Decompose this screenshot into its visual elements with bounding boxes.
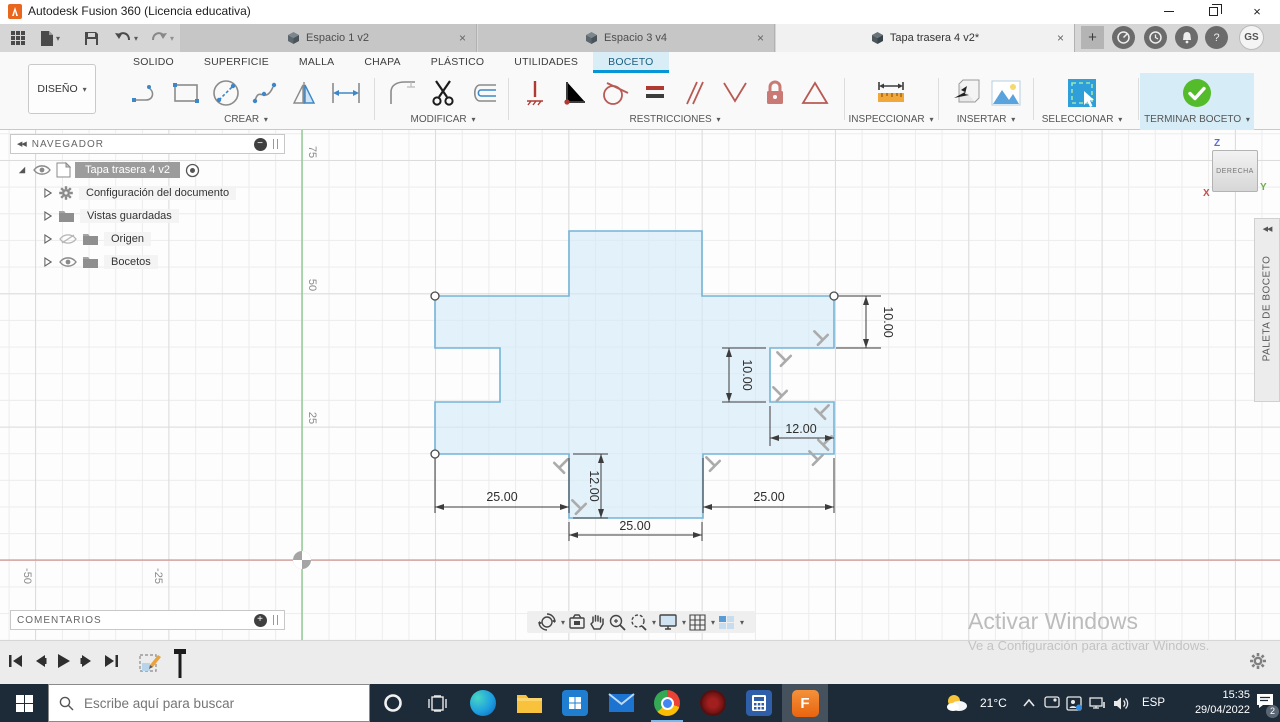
taskbar-radeon[interactable]	[690, 684, 736, 722]
tree-root-row[interactable]: Tapa trasera 4 v2	[18, 160, 200, 180]
tree-item-label[interactable]: Origen	[104, 232, 151, 246]
group-separator	[508, 78, 509, 120]
y-axis-tick: 75	[306, 146, 318, 158]
go-to-end-button[interactable]	[103, 653, 119, 669]
task-view-button[interactable]	[414, 684, 460, 722]
tray-volume[interactable]	[1108, 684, 1136, 722]
sketch-dimension-button[interactable]	[326, 74, 366, 112]
folder-icon	[516, 692, 543, 714]
dimension-value[interactable]: 10.00	[740, 359, 754, 390]
fix-constraint-icon	[524, 79, 546, 107]
tree-item-label[interactable]: Configuración del documento	[79, 186, 236, 200]
offset-icon	[468, 81, 498, 105]
group-label-terminar: TERMINAR BOCETO ▾	[1140, 114, 1254, 125]
network-icon	[1089, 696, 1106, 710]
dimension-value[interactable]: 10.00	[881, 306, 895, 337]
rectangle-icon	[172, 81, 200, 105]
doc-tab-label: Espacio 1 v2	[306, 32, 369, 44]
taskbar-store[interactable]	[552, 684, 598, 722]
tab-boceto[interactable]: BOCETO	[593, 52, 668, 73]
fusion-app-icon	[8, 4, 22, 19]
scissors-icon	[430, 79, 456, 107]
workspace-selector[interactable]: DISEÑO ▾	[28, 64, 96, 114]
navigator-title: NAVEGADOR	[32, 139, 104, 150]
group-label-seleccionar[interactable]: SELECCIONAR ▾	[1031, 114, 1133, 125]
grid-settings-button[interactable]	[689, 614, 706, 631]
mirror-icon	[292, 79, 320, 107]
collapse-panel-icon[interactable]: ◀◀	[17, 140, 26, 148]
viewcube[interactable]: DERECHA	[1212, 150, 1258, 192]
group-separator	[844, 78, 845, 120]
step-forward-button[interactable]	[80, 653, 94, 669]
expand-panel-icon[interactable]: ◀◀	[1263, 225, 1272, 233]
comments-label: COMENTARIOS	[17, 615, 102, 626]
chevron-down-icon: ▾	[1011, 115, 1015, 124]
group-separator	[1138, 78, 1139, 120]
chevron-up-icon	[1023, 699, 1035, 707]
gear-icon	[1248, 651, 1268, 671]
viewports-button[interactable]	[718, 615, 735, 630]
folder-icon	[58, 209, 75, 223]
notifications-button[interactable]	[1175, 26, 1198, 49]
file-icon	[40, 30, 54, 47]
measure-tool-button[interactable]	[871, 74, 911, 112]
perpendicular-constraint-button[interactable]	[715, 74, 755, 112]
radeon-icon	[700, 690, 726, 716]
redo-icon	[150, 31, 168, 45]
horizontal-vertical-constraint-button[interactable]	[555, 74, 595, 112]
search-input[interactable]	[84, 696, 334, 711]
circle-icon	[211, 78, 241, 108]
play-button[interactable]	[56, 653, 71, 669]
doc-tab-label: Espacio 3 v4	[604, 32, 667, 44]
group-label-crear[interactable]: CREAR ▾	[122, 114, 370, 125]
sketch-feature-icon	[138, 651, 164, 677]
offset-tool-button[interactable]	[463, 74, 503, 112]
chevron-down-icon: ▾	[1118, 115, 1122, 124]
viewcube-x-axis-label: X	[1203, 188, 1210, 199]
timeline-sketch-feature[interactable]	[138, 651, 164, 682]
restore-icon	[1209, 7, 1218, 16]
chevron-down-icon: ▾	[56, 34, 60, 43]
group-label-insertar[interactable]: INSERTAR ▾	[941, 114, 1031, 125]
panel-grip[interactable]	[273, 139, 278, 149]
root-document-label[interactable]: Tapa trasera 4 v2	[75, 162, 180, 178]
question-icon: ?	[1213, 32, 1219, 44]
edge-icon	[470, 690, 496, 716]
triangle-icon	[801, 80, 829, 106]
visibility-eye-icon[interactable]	[32, 164, 52, 176]
tab-utilidades[interactable]: UTILIDADES	[499, 52, 593, 73]
document-cube-icon	[871, 32, 884, 44]
viewcube-y-axis-label: Y	[1260, 182, 1267, 193]
ribbon-tab-strip: SOLIDO SUPERFICIE MALLA CHAPA PLÁSTICO U…	[118, 52, 669, 73]
chevron-down-icon: ▾	[717, 115, 721, 124]
sketch-palette-tab[interactable]: ◀◀ PALETA DE BOCETO	[1254, 218, 1280, 402]
chevron-down-icon: ▾	[929, 115, 933, 124]
dimension-icon	[330, 81, 362, 105]
tree-item-label[interactable]: Vistas guardadas	[80, 209, 179, 223]
group-separator	[374, 78, 375, 120]
document-cube-icon	[287, 32, 300, 44]
taskbar-fusion360[interactable]: F	[782, 684, 828, 722]
fix-constraint-button[interactable]	[515, 74, 555, 112]
tab-close-icon[interactable]: ×	[459, 31, 466, 45]
person-icon	[1066, 696, 1082, 711]
gear-icon	[58, 185, 74, 201]
comments-panel-header[interactable]: COMENTARIOS +	[10, 610, 285, 630]
x-axis-tick: -50	[21, 568, 33, 584]
x-axis-tick: -25	[152, 568, 164, 584]
horizontal-vertical-icon	[563, 80, 587, 106]
panel-grip[interactable]	[273, 615, 278, 625]
tree-item-vistas[interactable]: Vistas guardadas	[44, 206, 179, 226]
taskbar-edge[interactable]	[460, 684, 506, 722]
cortana-icon	[383, 693, 403, 713]
document-icon	[56, 162, 71, 178]
group-label-modificar[interactable]: MODIFICAR ▾	[380, 114, 506, 125]
undo-icon	[114, 31, 132, 45]
tray-language[interactable]: ESP	[1142, 684, 1165, 722]
rectangle-tool-button[interactable]	[166, 74, 206, 112]
select-tool-button[interactable]	[1062, 74, 1102, 112]
orbit-button[interactable]	[538, 613, 556, 631]
taskbar-chrome[interactable]	[644, 684, 690, 722]
folder-icon	[82, 232, 99, 246]
zoom-window-button[interactable]	[629, 613, 647, 631]
taskbar-explorer[interactable]	[506, 684, 552, 722]
group-label-inspeccionar[interactable]: INSPECCIONAR ▾	[848, 114, 934, 125]
sketch-palette-label: PALETA DE BOCETO	[1262, 256, 1273, 362]
tray-account[interactable]	[1062, 684, 1086, 722]
viewcube-z-axis-label: Z	[1214, 138, 1220, 149]
tangent-constraint-button[interactable]	[595, 74, 635, 112]
activate-target-icon[interactable]	[185, 163, 200, 178]
activate-windows-watermark-line2: Ve a Configuración para activar Windows.	[968, 638, 1209, 653]
chevron-down-icon[interactable]: ▾	[561, 618, 565, 627]
chevron-down-icon: ▾	[264, 115, 268, 124]
mail-icon	[608, 693, 635, 713]
windows-logo-icon	[16, 695, 33, 712]
origin-point[interactable]	[293, 551, 311, 569]
workspace-label: DISEÑO	[37, 83, 77, 95]
perpendicular-icon	[722, 81, 748, 105]
y-axis-tick: 50	[306, 279, 318, 291]
navigator-panel: ◀◀ NAVEGADOR − Tapa trasera 4 v2 Configu…	[10, 134, 285, 154]
mirror-tool-button[interactable]	[286, 74, 326, 112]
collapsed-caret-icon[interactable]	[44, 188, 52, 198]
tray-cast[interactable]	[1040, 684, 1064, 722]
select-icon	[1066, 77, 1098, 109]
display-settings-button[interactable]	[659, 614, 677, 630]
folder-icon	[82, 255, 99, 269]
store-icon	[562, 690, 588, 716]
close-button[interactable]: ×	[1240, 0, 1274, 22]
chevron-down-icon[interactable]: ▾	[652, 618, 656, 627]
dimension-value[interactable]: 12.00	[785, 422, 816, 436]
ribbon: DISEÑO ▾ SOLIDO SUPERFICIE MALLA CHAPA P…	[0, 52, 1280, 130]
tree-item-label[interactable]: Bocetos	[104, 255, 158, 269]
sketch-canvas[interactable]: 10.00 10.00 12.00 12.00 25.00 25.00 25.0…	[0, 130, 1280, 640]
calculator-icon	[746, 690, 772, 716]
chrome-icon	[654, 690, 680, 716]
tangent-icon	[601, 79, 629, 107]
weather-icon	[945, 693, 969, 713]
group-insertar: INSERTAR ▾	[941, 73, 1031, 130]
tray-show-hidden[interactable]	[1016, 684, 1042, 722]
image-icon	[991, 80, 1021, 106]
dimension-value[interactable]: 25.00	[619, 519, 650, 533]
timeline-playhead[interactable]	[172, 649, 188, 684]
collapsed-caret-icon[interactable]	[44, 211, 52, 221]
clock-icon	[1149, 31, 1162, 44]
step-back-button[interactable]	[33, 653, 47, 669]
undo-button[interactable]: ▾	[114, 28, 138, 48]
expanded-caret-icon[interactable]	[18, 165, 26, 175]
quick-access-bar: ▾ ▾ ▾ Espacio 1 v2 × Espacio 3 v4 × Tapa…	[0, 24, 1280, 52]
trim-tool-button[interactable]	[423, 74, 463, 112]
group-label-restricciones[interactable]: RESTRICCIONES ▾	[510, 114, 840, 125]
chevron-down-icon[interactable]: ▾	[740, 618, 744, 627]
tab-close-icon[interactable]: ×	[1057, 31, 1064, 45]
notification-badge: 2	[1266, 705, 1279, 718]
tab-superficie[interactable]: SUPERFICIE	[189, 52, 284, 73]
extensions-icon	[1117, 31, 1130, 44]
fillet-tool-button[interactable]	[383, 74, 423, 112]
speaker-icon	[1113, 696, 1131, 711]
pan-button[interactable]	[589, 613, 605, 631]
timeline-settings-button[interactable]	[1248, 651, 1268, 676]
doc-tab-espacio-1[interactable]: Espacio 1 v2 ×	[180, 24, 477, 52]
circle-tool-button[interactable]	[206, 74, 246, 112]
minimize-icon	[1164, 11, 1174, 12]
bell-icon	[1181, 31, 1193, 44]
tab-close-icon[interactable]: ×	[757, 31, 764, 45]
taskbar-calculator[interactable]	[736, 684, 782, 722]
save-icon	[84, 31, 99, 46]
tray-date: 29/04/2022	[1178, 703, 1250, 718]
equal-constraint-button[interactable]	[635, 74, 675, 112]
windows-taskbar: F 21°C ESP 15:35 29/04/2022 2	[0, 684, 1280, 722]
save-button[interactable]	[84, 28, 99, 48]
canvas-nav-toolbar: ▾ ▾ ▾ ▾ ▾	[527, 611, 755, 633]
measure-icon	[875, 80, 907, 106]
start-button[interactable]	[0, 684, 48, 722]
chevron-down-icon: ▾	[170, 34, 174, 43]
parallel-icon	[683, 80, 707, 106]
equal-icon	[644, 82, 666, 104]
tray-network[interactable]	[1084, 684, 1110, 722]
doc-tab-tapa-trasera[interactable]: Tapa trasera 4 v2* ×	[776, 24, 1075, 52]
help-button[interactable]: ?	[1205, 26, 1228, 49]
file-menu-button[interactable]: ▾	[40, 28, 60, 48]
visibility-off-eye-icon[interactable]	[58, 232, 78, 246]
group-crear: CREAR ▾	[122, 73, 370, 130]
tray-time: 15:35	[1178, 688, 1250, 703]
extensions-button[interactable]	[1112, 26, 1135, 49]
tab-chapa[interactable]: CHAPA	[349, 52, 415, 73]
group-modificar: MODIFICAR ▾	[380, 73, 506, 130]
user-avatar[interactable]: GS	[1239, 25, 1264, 50]
lock-constraint-button[interactable]	[755, 74, 795, 112]
action-center-button[interactable]: 2	[1250, 684, 1280, 722]
tree-item-origen[interactable]: Origen	[44, 229, 151, 249]
chevron-down-icon[interactable]: ▾	[711, 618, 715, 627]
group-seleccionar: SELECCIONAR ▾	[1031, 73, 1133, 130]
window-title: Autodesk Fusion 360 (Licencia educativa)	[28, 4, 251, 18]
go-to-start-button[interactable]	[8, 653, 24, 669]
navigator-header[interactable]: ◀◀ NAVEGADOR −	[10, 134, 285, 154]
hide-panel-icon[interactable]: −	[254, 138, 267, 151]
sketch-profile[interactable]	[435, 231, 834, 518]
grid-icon	[10, 30, 26, 46]
symmetry-constraint-button[interactable]	[795, 74, 835, 112]
finish-sketch-button[interactable]: TERMINAR BOCETO ▾	[1140, 73, 1254, 130]
group-separator	[938, 78, 939, 120]
fusion360-icon: F	[792, 690, 819, 717]
dimension-value[interactable]: 12.00	[587, 470, 601, 501]
tab-plastico[interactable]: PLÁSTICO	[416, 52, 500, 73]
doc-tab-espacio-3[interactable]: Espacio 3 v4 ×	[478, 24, 775, 52]
taskbar-search[interactable]	[48, 684, 370, 722]
chevron-down-icon: ▾	[1246, 115, 1250, 124]
line-tool-button[interactable]	[126, 74, 166, 112]
tab-solido[interactable]: SOLIDO	[118, 52, 189, 73]
document-cube-icon	[585, 32, 598, 44]
new-tab-button[interactable]: +	[1081, 26, 1104, 49]
tree-item-configuracion[interactable]: Configuración del documento	[44, 183, 236, 203]
visibility-eye-icon[interactable]	[58, 255, 78, 269]
insert-derive-button[interactable]	[946, 74, 986, 112]
tab-malla[interactable]: MALLA	[284, 52, 349, 73]
chevron-down-icon: ▾	[134, 34, 138, 43]
title-bar: Autodesk Fusion 360 (Licencia educativa)…	[0, 0, 1280, 24]
cast-icon	[1044, 696, 1060, 710]
spline-icon	[251, 79, 281, 107]
viewcube-face-label: DERECHA	[1216, 168, 1254, 175]
cortana-button[interactable]	[370, 684, 416, 722]
finish-check-icon	[1177, 74, 1217, 112]
tray-weather[interactable]	[938, 684, 976, 722]
look-at-button[interactable]	[568, 614, 586, 630]
redo-button[interactable]: ▾	[150, 28, 174, 48]
timeline-play-controls	[8, 653, 119, 669]
collapsed-caret-icon[interactable]	[44, 257, 52, 267]
close-icon: ×	[1253, 4, 1261, 19]
minimize-button[interactable]	[1152, 0, 1186, 22]
tray-temperature[interactable]: 21°C	[980, 684, 1007, 722]
y-axis-tick: 25	[306, 412, 318, 424]
chevron-down-icon[interactable]: ▾	[682, 618, 686, 627]
group-inspeccionar: INSPECCIONAR ▾	[848, 73, 934, 130]
task-view-icon	[428, 695, 447, 712]
add-comment-icon[interactable]: +	[254, 614, 267, 627]
taskbar-mail[interactable]	[598, 684, 644, 722]
search-icon	[59, 696, 74, 711]
spline-tool-button[interactable]	[246, 74, 286, 112]
lock-icon	[763, 79, 787, 107]
dimension-value[interactable]: 25.00	[486, 490, 517, 504]
plus-icon: +	[1088, 29, 1097, 46]
activate-windows-watermark: Activar Windows	[968, 608, 1138, 635]
doc-tab-label: Tapa trasera 4 v2*	[890, 32, 979, 44]
line-icon	[131, 80, 161, 106]
dimension-value[interactable]: 25.00	[753, 490, 784, 504]
chevron-down-icon: ▾	[471, 115, 475, 124]
app-grid-button[interactable]	[10, 28, 26, 48]
parallel-constraint-button[interactable]	[675, 74, 715, 112]
tree-item-bocetos[interactable]: Bocetos	[44, 252, 158, 272]
maximize-button[interactable]	[1196, 0, 1230, 22]
tray-clock[interactable]: 15:35 29/04/2022	[1178, 688, 1250, 718]
sketch-layer: 10.00 10.00 12.00 12.00 25.00 25.00 25.0…	[0, 130, 1280, 640]
timeline-bar: Ve a Configuración para activar Windows.	[0, 640, 1280, 684]
zoom-button[interactable]	[608, 613, 626, 631]
group-restricciones: RESTRICCIONES ▾	[510, 73, 840, 130]
collapsed-caret-icon[interactable]	[44, 234, 52, 244]
fillet-icon	[389, 80, 417, 106]
insert-box-icon	[951, 78, 981, 108]
chevron-down-icon: ▾	[83, 85, 87, 94]
job-status-button[interactable]	[1144, 26, 1167, 49]
insert-canvas-button[interactable]	[986, 74, 1026, 112]
